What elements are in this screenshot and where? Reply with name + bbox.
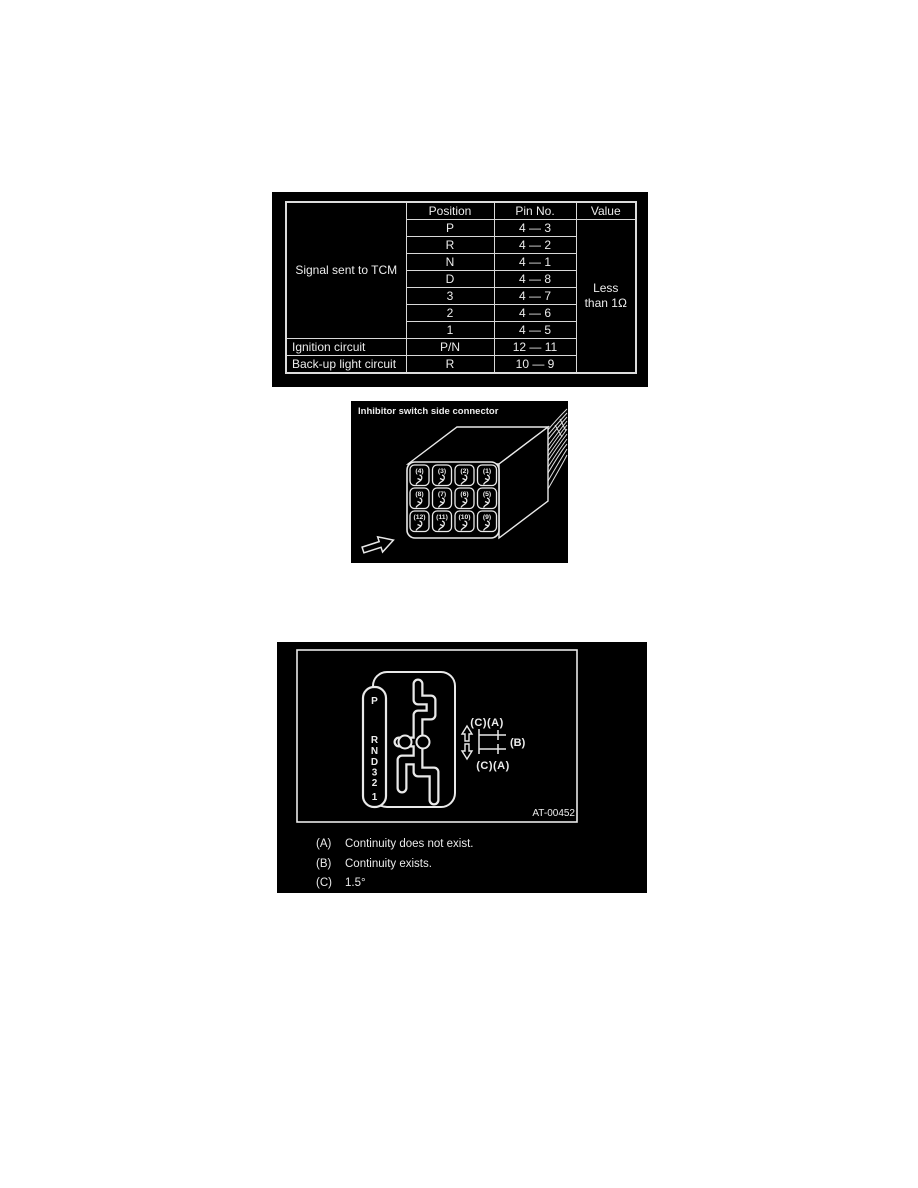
connector-figure: Inhibitor switch side connector bbox=[351, 401, 568, 563]
table-cell-group-ignition: Ignition circuit bbox=[286, 339, 406, 356]
pin-label: (6) bbox=[460, 491, 468, 498]
table-cell-position: D bbox=[406, 271, 494, 288]
gear-label: R bbox=[371, 735, 379, 746]
connector-title: Inhibitor switch side connector bbox=[358, 406, 499, 417]
gate-detent-circle bbox=[417, 736, 430, 749]
legend-key: (C) bbox=[316, 874, 345, 894]
annotation-top: (C)(A) bbox=[470, 717, 504, 729]
gear-label: 3 bbox=[372, 768, 378, 779]
legend-text: Continuity does not exist. bbox=[345, 835, 474, 855]
table-cell-pin-no: 4 — 6 bbox=[494, 305, 576, 322]
down-arrow-icon bbox=[462, 744, 472, 759]
gear-label: 1 bbox=[372, 792, 378, 803]
table-cell-pin-no: 4 — 7 bbox=[494, 288, 576, 305]
pin-label: (5) bbox=[483, 491, 491, 498]
table-cell-pin-no: 4 — 2 bbox=[494, 237, 576, 254]
legend-item: (B) Continuity exists. bbox=[316, 855, 474, 875]
legend-key: (A) bbox=[316, 835, 345, 855]
gear-label: N bbox=[371, 746, 378, 757]
shift-gate-figure: P R N D 3 2 1 (C)(A) (B) (C)(A) AT-00452 bbox=[277, 642, 647, 893]
table-cell-value: Less than 1Ω bbox=[576, 220, 636, 374]
gear-label: P bbox=[371, 696, 378, 707]
pin-label: (11) bbox=[436, 514, 448, 521]
contact-angle-symbol bbox=[479, 729, 506, 754]
gate-detent-circle bbox=[399, 736, 412, 749]
pin-label: (3) bbox=[438, 468, 446, 475]
table-header-value: Value bbox=[576, 202, 636, 220]
legend-key: (B) bbox=[316, 855, 345, 875]
table-cell-position: P/N bbox=[406, 339, 494, 356]
table-cell-position: 1 bbox=[406, 322, 494, 339]
table-cell-pin-no: 12 — 11 bbox=[494, 339, 576, 356]
table-header-pin-no: Pin No. bbox=[494, 202, 576, 220]
resistance-table: Signal sent to TCM Position Pin No. Valu… bbox=[285, 201, 637, 374]
table-header-position: Position bbox=[406, 202, 494, 220]
pin-label: (8) bbox=[415, 491, 423, 498]
manual-page: Signal sent to TCM Position Pin No. Valu… bbox=[0, 0, 918, 1188]
legend: (A) Continuity does not exist. (B) Conti… bbox=[316, 835, 474, 894]
table-cell-pin-no: 10 — 9 bbox=[494, 356, 576, 374]
pin-label: (7) bbox=[438, 491, 446, 498]
shift-gate-drawing: P R N D 3 2 1 (C)(A) (B) (C)(A) AT-00452 bbox=[277, 642, 647, 828]
table-cell-pin-no: 4 — 8 bbox=[494, 271, 576, 288]
pin-label: (10) bbox=[458, 514, 470, 521]
legend-text: Continuity exists. bbox=[345, 855, 474, 875]
gear-label: D bbox=[371, 757, 378, 768]
pin-label: (9) bbox=[483, 514, 491, 521]
table-cell-group-signal: Signal sent to TCM bbox=[286, 202, 406, 339]
pin-label: (1) bbox=[483, 468, 491, 475]
wire-bundle bbox=[547, 409, 567, 489]
pointer-arrow-icon bbox=[361, 533, 396, 558]
table-cell-position: P bbox=[406, 220, 494, 237]
table-cell-position: N bbox=[406, 254, 494, 271]
legend-item: (C) 1.5° bbox=[316, 874, 474, 894]
annotation-middle: (B) bbox=[510, 737, 526, 749]
table-cell-pin-no: 4 — 5 bbox=[494, 322, 576, 339]
figure-id: AT-00452 bbox=[532, 808, 575, 819]
table-cell-position: 3 bbox=[406, 288, 494, 305]
gear-label: 2 bbox=[372, 778, 378, 789]
table-cell-pin-no: 4 — 1 bbox=[494, 254, 576, 271]
annotation-bottom: (C)(A) bbox=[476, 760, 510, 772]
resistance-table-figure: Signal sent to TCM Position Pin No. Valu… bbox=[272, 192, 648, 387]
table-cell-position: R bbox=[406, 356, 494, 374]
legend-item: (A) Continuity does not exist. bbox=[316, 835, 474, 855]
table-cell-position: R bbox=[406, 237, 494, 254]
pin-label: (2) bbox=[460, 468, 468, 475]
table-cell-pin-no: 4 — 3 bbox=[494, 220, 576, 237]
pin-label: (4) bbox=[415, 468, 423, 475]
table-cell-group-backup: Back-up light circuit bbox=[286, 356, 406, 374]
table-header-row: Signal sent to TCM Position Pin No. Valu… bbox=[286, 202, 636, 220]
table-cell-position: 2 bbox=[406, 305, 494, 322]
pin-label: (12) bbox=[413, 514, 425, 521]
legend-text: 1.5° bbox=[345, 874, 474, 894]
connector-drawing: Inhibitor switch side connector bbox=[351, 401, 568, 563]
